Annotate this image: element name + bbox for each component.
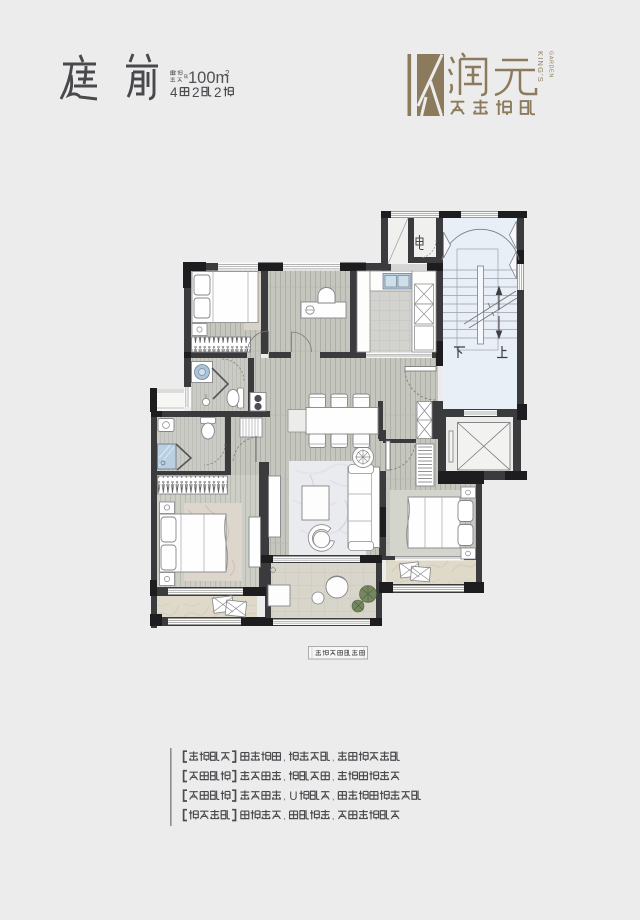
svg-text:2: 2 bbox=[225, 69, 230, 78]
svg-text:GARDEN: GARDEN bbox=[548, 51, 554, 78]
svg-text:JZ: JZ bbox=[170, 71, 177, 77]
svg-text:2: 2 bbox=[192, 85, 200, 100]
svg-text:4: 4 bbox=[170, 85, 178, 100]
svg-text:KING'S: KING'S bbox=[536, 51, 545, 83]
svg-text:2: 2 bbox=[214, 85, 222, 100]
svg-text:U: U bbox=[289, 791, 297, 803]
